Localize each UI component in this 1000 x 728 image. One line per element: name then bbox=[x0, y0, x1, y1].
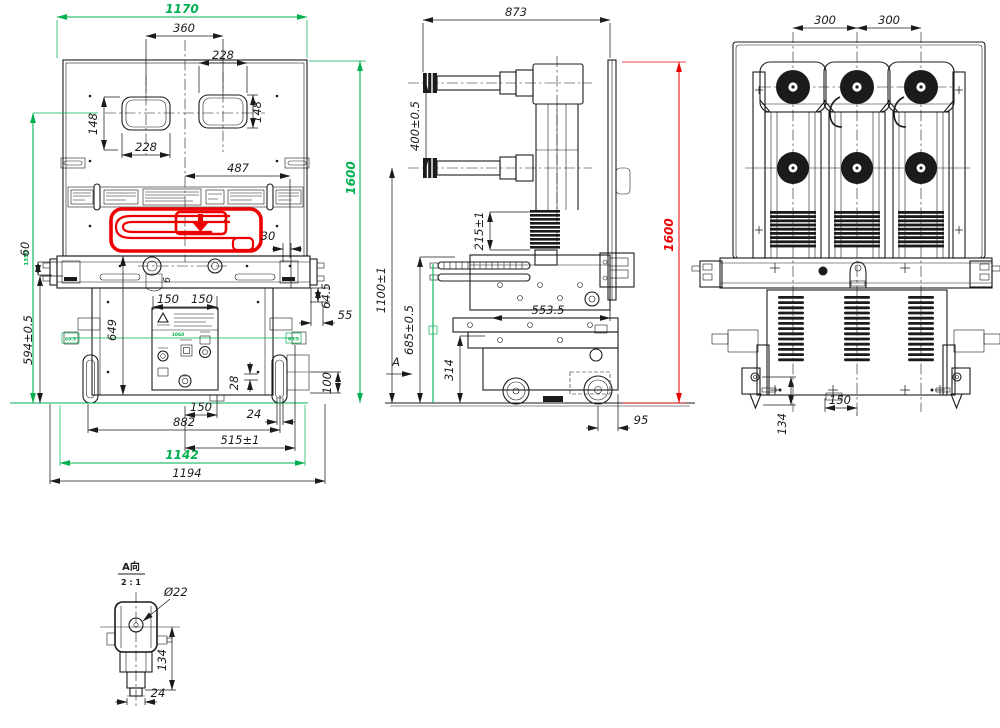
dim-front-60: 60 bbox=[18, 242, 32, 257]
dim-front-150a: 150 bbox=[157, 292, 179, 306]
engineering-drawing-sheet: 1350 60.5 60.5 1060 1170 1600 1142 360 2… bbox=[0, 0, 1000, 728]
dim-front-148-right: 148 bbox=[250, 101, 264, 123]
detail-scale: 2 : 1 bbox=[121, 578, 141, 587]
dim-front-24: 24 bbox=[247, 407, 262, 421]
dim-front-487: 487 bbox=[227, 161, 250, 175]
dim-front-28: 28 bbox=[227, 376, 241, 391]
dim-front-228-right: 228 bbox=[212, 48, 234, 62]
dim-front-64-5: 64.5 bbox=[319, 283, 333, 309]
dim-side-685: 685±0.5 bbox=[402, 305, 416, 355]
label-strip bbox=[68, 184, 303, 210]
dim-rear-300a: 300 bbox=[814, 13, 836, 27]
view-arrow-label: A bbox=[391, 355, 400, 369]
dim-front-515: 515±1 bbox=[221, 433, 260, 447]
dim-front-30: 30 bbox=[261, 229, 276, 243]
dim-side-215: 215±1 bbox=[472, 212, 486, 251]
dim-side-400: 400±0.5 bbox=[408, 101, 422, 151]
dim-front-wheel-right: 60.5 bbox=[288, 337, 299, 343]
dim-front-1142: 1142 bbox=[165, 448, 198, 462]
dim-side-873: 873 bbox=[505, 5, 527, 19]
highlighted-interlock-slot bbox=[111, 209, 261, 251]
front-view: 1350 60.5 60.5 1060 1170 1600 1142 360 2… bbox=[10, 2, 366, 484]
dim-side-314: 314 bbox=[442, 359, 456, 381]
dim-front-150b: 150 bbox=[191, 292, 213, 306]
dim-side-553-5: 553.5 bbox=[532, 303, 565, 317]
dim-front-6: 6 bbox=[162, 277, 173, 283]
dim-detail-134: 134 bbox=[155, 649, 169, 671]
detail-title: A向 bbox=[122, 560, 140, 573]
dim-front-882: 882 bbox=[173, 415, 195, 429]
dim-detail-24: 24 bbox=[151, 686, 166, 700]
dim-front-height-green: 1600 bbox=[344, 161, 358, 194]
mechanism-control-panel bbox=[152, 308, 218, 390]
dim-front-55: 55 bbox=[338, 308, 353, 322]
dim-front-wheel-left: 60.5 bbox=[65, 337, 76, 343]
dim-front-mid-green: 1060 bbox=[172, 332, 185, 338]
dim-side-95: 95 bbox=[634, 413, 649, 427]
drawing-canvas: 1350 60.5 60.5 1060 1170 1600 1142 360 2… bbox=[0, 0, 1000, 728]
dim-rear-134: 134 bbox=[775, 413, 789, 435]
dim-rear-150: 150 bbox=[829, 393, 851, 407]
dim-front-594: 594±0.5 bbox=[21, 315, 35, 365]
dim-front-360: 360 bbox=[173, 21, 195, 35]
dim-front-148-left: 148 bbox=[86, 113, 100, 135]
dim-front-1194: 1194 bbox=[172, 466, 201, 480]
dim-front-width-green: 1170 bbox=[165, 2, 198, 16]
dim-side-1100: 1100±1 bbox=[374, 267, 388, 313]
dim-front-649: 649 bbox=[105, 319, 119, 341]
dim-front-100: 100 bbox=[320, 372, 334, 394]
dim-front-150c: 150 bbox=[190, 400, 212, 414]
dim-side-1600-red: 1600 bbox=[662, 218, 676, 251]
detail-view-a: A向 2 : 1 Ø22 134 24 bbox=[100, 560, 188, 706]
rear-view: 300 300 150 134 bbox=[692, 13, 1000, 435]
dim-detail-dia22: Ø22 bbox=[163, 585, 188, 599]
dim-front-228-left: 228 bbox=[135, 140, 157, 154]
dim-rear-300b: 300 bbox=[878, 13, 900, 27]
side-view: 873 400±0.5 215±1 1100±1 685±0.5 314 553… bbox=[374, 5, 695, 431]
